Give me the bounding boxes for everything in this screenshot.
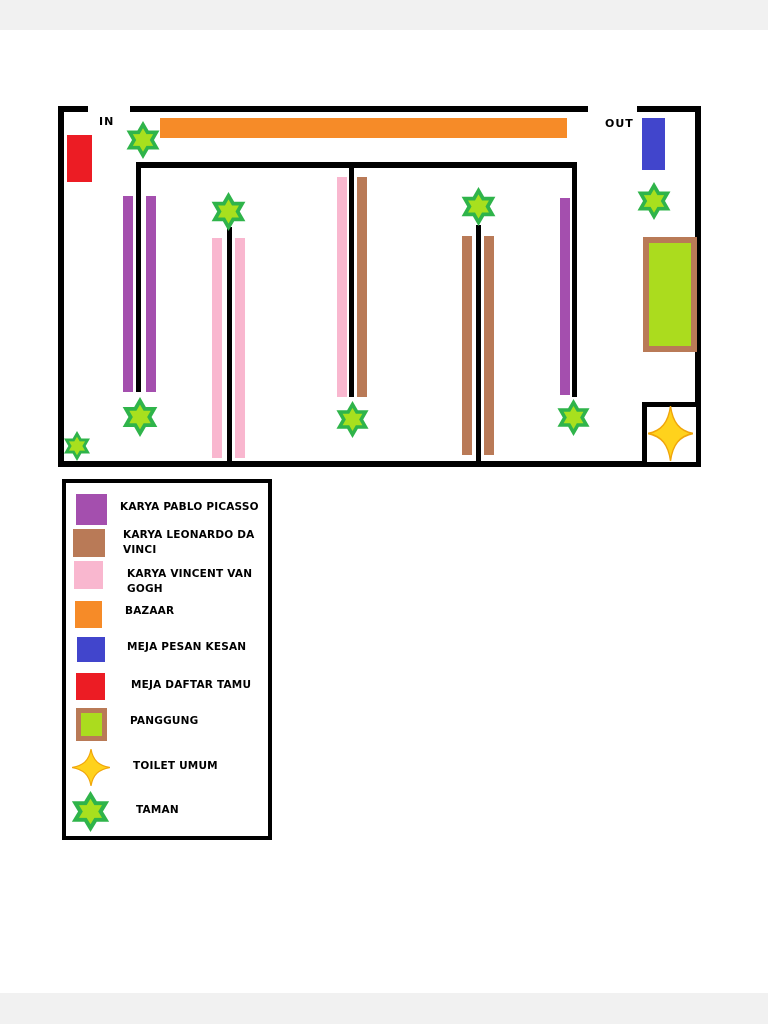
legend-swatch-5 (76, 673, 105, 700)
legend-label-4: MEJA PESAN KESAN (127, 640, 273, 655)
legend-label-6: PANGGUNG (130, 714, 276, 729)
toilet-icon (72, 749, 110, 786)
legend-swatch-4 (77, 637, 105, 662)
legend-swatch-3 (75, 601, 102, 628)
legend-swatch-2 (74, 561, 103, 589)
legend-label-3: BAZAAR (125, 604, 271, 619)
legend-label-5: MEJA DAFTAR TAMU (131, 678, 277, 693)
legend-swatch-0 (76, 494, 107, 525)
legend-swatch-1 (73, 529, 105, 557)
legend-label-8: TAMAN (136, 803, 282, 818)
legend-swatch-6 (76, 708, 107, 741)
legend-label-2: KARYA VINCENT VAN GOGH (127, 567, 273, 597)
taman-garden-icon (69, 791, 112, 832)
legend-label-1: KARYA LEONARDO DA VINCI (123, 528, 269, 558)
legend-label-7: TOILET UMUM (133, 759, 279, 774)
legend-label-0: KARYA PABLO PICASSO (120, 500, 266, 515)
legend-items: KARYA PABLO PICASSOKARYA LEONARDO DA VIN… (0, 0, 768, 1024)
